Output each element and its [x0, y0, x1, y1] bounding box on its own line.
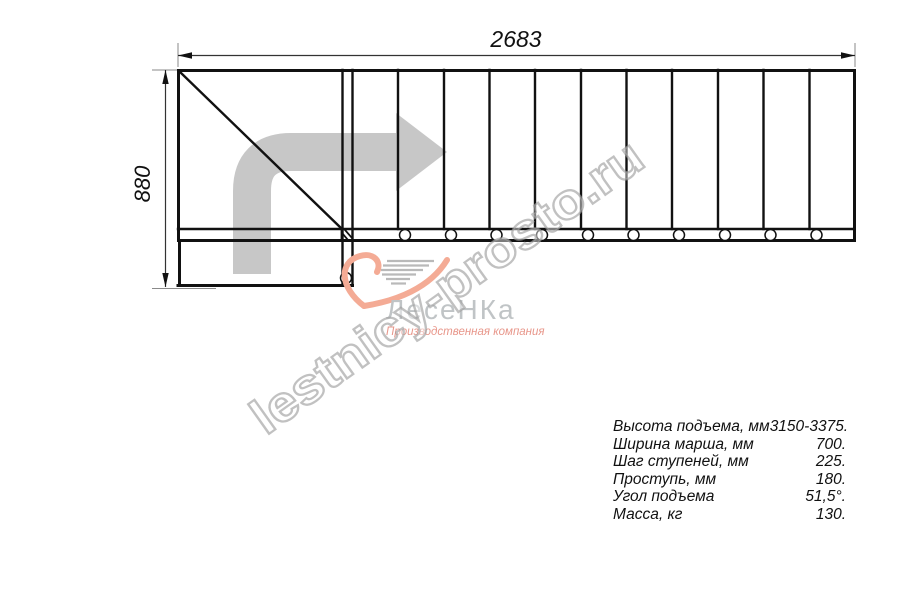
- spec-row-tread: Проступь, мм 180.: [613, 471, 846, 489]
- spec-label: Проступь, мм: [613, 471, 716, 489]
- spec-label: Ширина марша, мм: [613, 436, 754, 454]
- spec-value: 700.: [816, 436, 846, 454]
- spec-row-step: Шаг ступеней, мм 225.: [613, 453, 846, 471]
- direction-arrow: [252, 113, 447, 274]
- top-dimension: 2683: [178, 26, 855, 67]
- arrowhead: [396, 113, 447, 191]
- spec-value: 3150-3375.: [770, 418, 848, 436]
- spec-label: Высота подъема, мм: [613, 418, 770, 436]
- drawing-canvas: 2683 880 ЛесеНКа Производственная компан…: [0, 0, 900, 600]
- spec-value: 225.: [816, 453, 846, 471]
- spec-label: Угол подъема: [613, 488, 714, 506]
- spec-value: 51,5°.: [805, 488, 846, 506]
- height-dimension-label: 880: [130, 165, 155, 202]
- spec-row-width: Ширина марша, мм 700.: [613, 436, 846, 454]
- spec-list: Высота подъема, мм 3150-3375. Ширина мар…: [613, 418, 846, 524]
- left-dimension: 880: [130, 70, 216, 289]
- spec-row-height: Высота подъема, мм 3150-3375.: [613, 418, 846, 436]
- spec-label: Масса, кг: [613, 506, 682, 524]
- spec-value: 130.: [816, 506, 846, 524]
- spec-row-angle: Угол подъема 51,5°.: [613, 488, 846, 506]
- width-dimension-label: 2683: [489, 26, 541, 52]
- spec-label: Шаг ступеней, мм: [613, 453, 749, 471]
- spec-row-mass: Масса, кг 130.: [613, 506, 846, 524]
- spec-value: 180.: [816, 471, 846, 489]
